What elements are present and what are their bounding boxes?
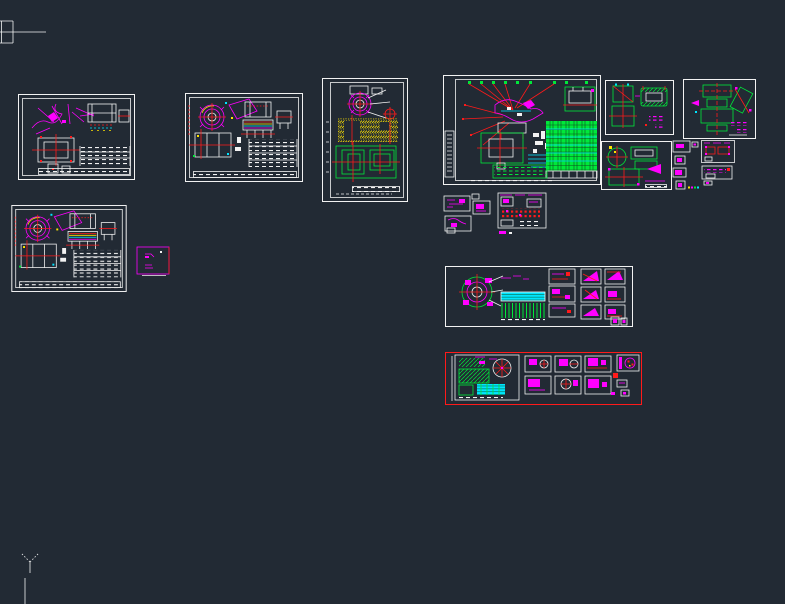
detail-pair-graphic bbox=[701, 140, 749, 186]
assembly-sheet-1-graphic bbox=[18, 94, 135, 180]
part-sheet-3[interactable] bbox=[601, 141, 672, 190]
portrait-install-sheet[interactable] bbox=[322, 78, 408, 202]
schematic-fragment-group[interactable] bbox=[443, 192, 549, 235]
selected-symbol-box[interactable] bbox=[136, 246, 172, 277]
assembly-sheet-2-graphic bbox=[185, 93, 303, 182]
vertical-line-glyph bbox=[24, 578, 26, 604]
clipped-drawing-fragment[interactable] bbox=[0, 17, 50, 45]
red-framed-graphic bbox=[445, 352, 642, 405]
part-sheet-1-graphic bbox=[605, 80, 674, 135]
assembly-sheet-1[interactable] bbox=[18, 94, 135, 180]
part-sheet-3-graphic bbox=[601, 141, 672, 190]
assembly-sheet-3[interactable] bbox=[10, 205, 128, 292]
ucs-y-axis-marker bbox=[17, 550, 43, 576]
large-sheet-graphic bbox=[443, 75, 601, 185]
y-axis-glyph bbox=[17, 550, 43, 576]
red-framed-panel-sheet[interactable] bbox=[445, 352, 642, 405]
assembly-sheet-3-graphic bbox=[10, 205, 128, 292]
assembly-sheet-2[interactable] bbox=[185, 93, 303, 182]
portrait-sheet-graphic bbox=[322, 78, 408, 202]
small-boxes-graphic bbox=[672, 140, 700, 198]
part-sheet-2[interactable] bbox=[683, 79, 756, 139]
fragment-graphic bbox=[0, 17, 50, 45]
schematic-fragments-graphic bbox=[443, 192, 549, 235]
part-sheet-2-graphic bbox=[683, 79, 756, 139]
top-markers bbox=[468, 81, 588, 84]
symbol-box-graphic bbox=[136, 246, 172, 277]
model-space-canvas[interactable] bbox=[0, 0, 785, 604]
clipped-vertical-line bbox=[24, 578, 26, 604]
part-sheet-1[interactable] bbox=[605, 80, 674, 135]
large-layout-sheet[interactable] bbox=[443, 75, 601, 185]
detail-view-pair[interactable] bbox=[701, 140, 749, 186]
multi-panel-graphic bbox=[445, 266, 633, 327]
multi-panel-sheet[interactable] bbox=[445, 266, 633, 327]
small-detail-boxes[interactable] bbox=[672, 140, 700, 198]
